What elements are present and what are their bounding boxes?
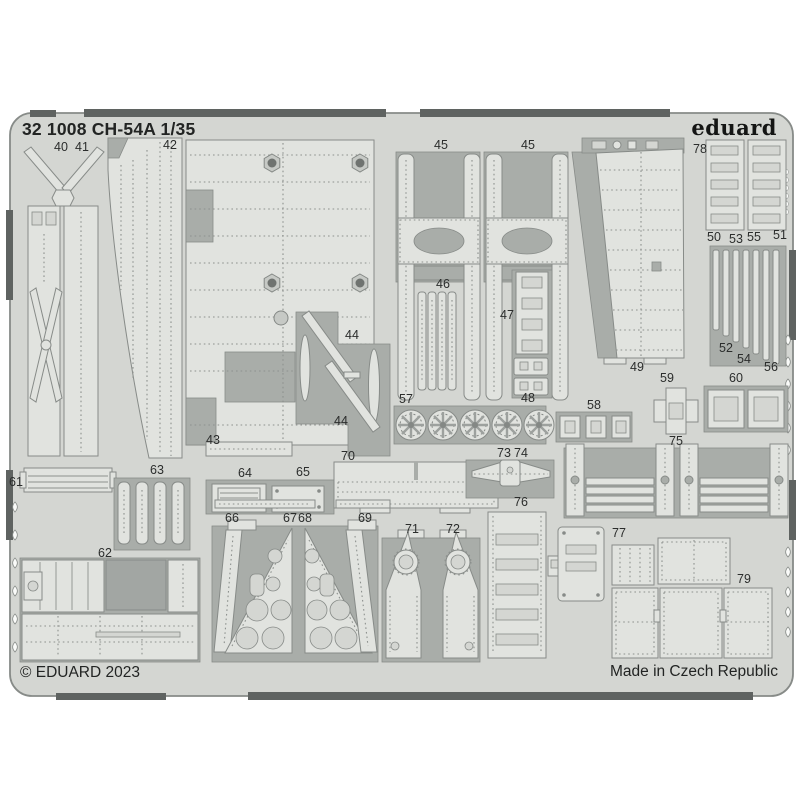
part-number-label: 52: [719, 342, 733, 355]
sheet-code-title: 32 1008 CH-54A 1/35: [22, 119, 195, 140]
part-63: [114, 478, 190, 550]
part-number-label: 58: [587, 399, 601, 412]
part-number-label: 60: [729, 372, 743, 385]
part-number-label: 42: [163, 139, 177, 152]
part-number-label: 44: [345, 329, 359, 342]
part-61: [20, 468, 116, 492]
part-number-label: 63: [150, 464, 164, 477]
part-number-label: 66: [225, 512, 239, 525]
part-number-label: 70: [341, 450, 355, 463]
part-number-label: 54: [737, 353, 751, 366]
part-number-label: 59: [660, 372, 674, 385]
part-number-label: 46: [436, 278, 450, 291]
part-number-label: 65: [296, 466, 310, 479]
part-62: [20, 558, 200, 662]
part-number-label: 44: [334, 415, 348, 428]
part-number-label: 57: [399, 393, 413, 406]
part-number-label: 79: [737, 573, 751, 586]
part-number-label: 74: [514, 447, 528, 460]
part-number-label: 41: [75, 141, 89, 154]
part-number-label: 75: [669, 435, 683, 448]
part-number-label: 76: [514, 496, 528, 509]
part-71-72: [382, 530, 480, 662]
part-number-label: 78: [693, 143, 707, 156]
part-number-label: 56: [764, 361, 778, 374]
part-number-label: 64: [238, 467, 252, 480]
part-number-label: 69: [358, 512, 372, 525]
part-number-label: 68: [298, 512, 312, 525]
part-number-label: 51: [773, 229, 787, 242]
part-number-label: 53: [729, 233, 743, 246]
part-number-label: 43: [206, 434, 220, 447]
part-number-label: 40: [54, 141, 68, 154]
part-60: [704, 386, 788, 432]
part-58: [556, 412, 632, 442]
small-slat-bars: [215, 500, 390, 508]
photo-etch-sheet-image: 32 1008 CH-54A 1/35 eduard © EDUARD 2023…: [0, 0, 800, 800]
part-number-label: 45: [521, 139, 535, 152]
part-number-label: 45: [434, 139, 448, 152]
part-number-label: 67: [283, 512, 297, 525]
part-number-label: 61: [9, 476, 23, 489]
part-57: [394, 406, 554, 444]
part-73-74: [466, 460, 554, 498]
part-66-69: [212, 520, 378, 662]
copyright-text: © EDUARD 2023: [20, 664, 140, 682]
eduard-logo: eduard: [691, 115, 777, 140]
part-64-65: [206, 480, 334, 514]
part-number-label: 49: [630, 361, 644, 374]
part-number-label: 62: [98, 547, 112, 560]
part-number-label: 73: [497, 447, 511, 460]
part-number-label: 48: [521, 392, 535, 405]
part-number-label: 77: [612, 527, 626, 540]
part-number-label: 50: [707, 231, 721, 244]
made-in-text: Made in Czech Republic: [610, 663, 778, 681]
part-75: [564, 444, 788, 518]
part-number-label: 47: [500, 309, 514, 322]
part-number-label: 72: [446, 523, 460, 536]
part-number-label: 71: [405, 523, 419, 536]
part-number-label: 55: [747, 231, 761, 244]
